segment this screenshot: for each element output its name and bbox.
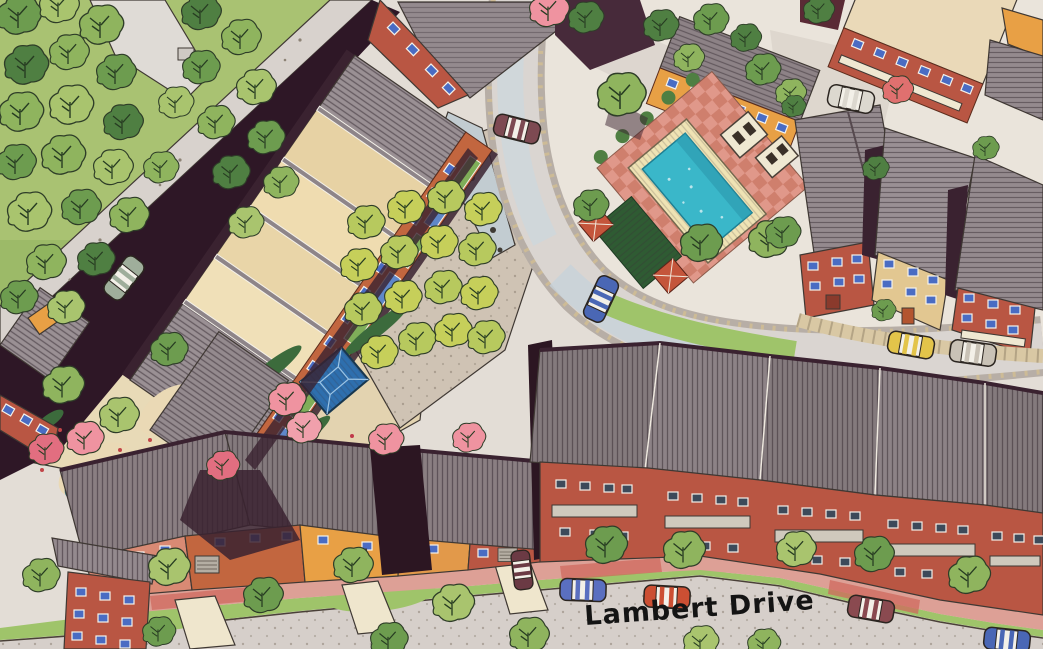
car-blue-lambert	[560, 578, 607, 602]
car-driveway	[510, 549, 533, 590]
site-plan-illustration: Lambert Drive	[0, 0, 1043, 649]
car-blue-corner	[983, 627, 1031, 649]
site-plan-canvas: Lambert Drive	[0, 0, 1043, 649]
pink-tree	[453, 423, 486, 452]
southwest-multistory	[52, 538, 158, 649]
